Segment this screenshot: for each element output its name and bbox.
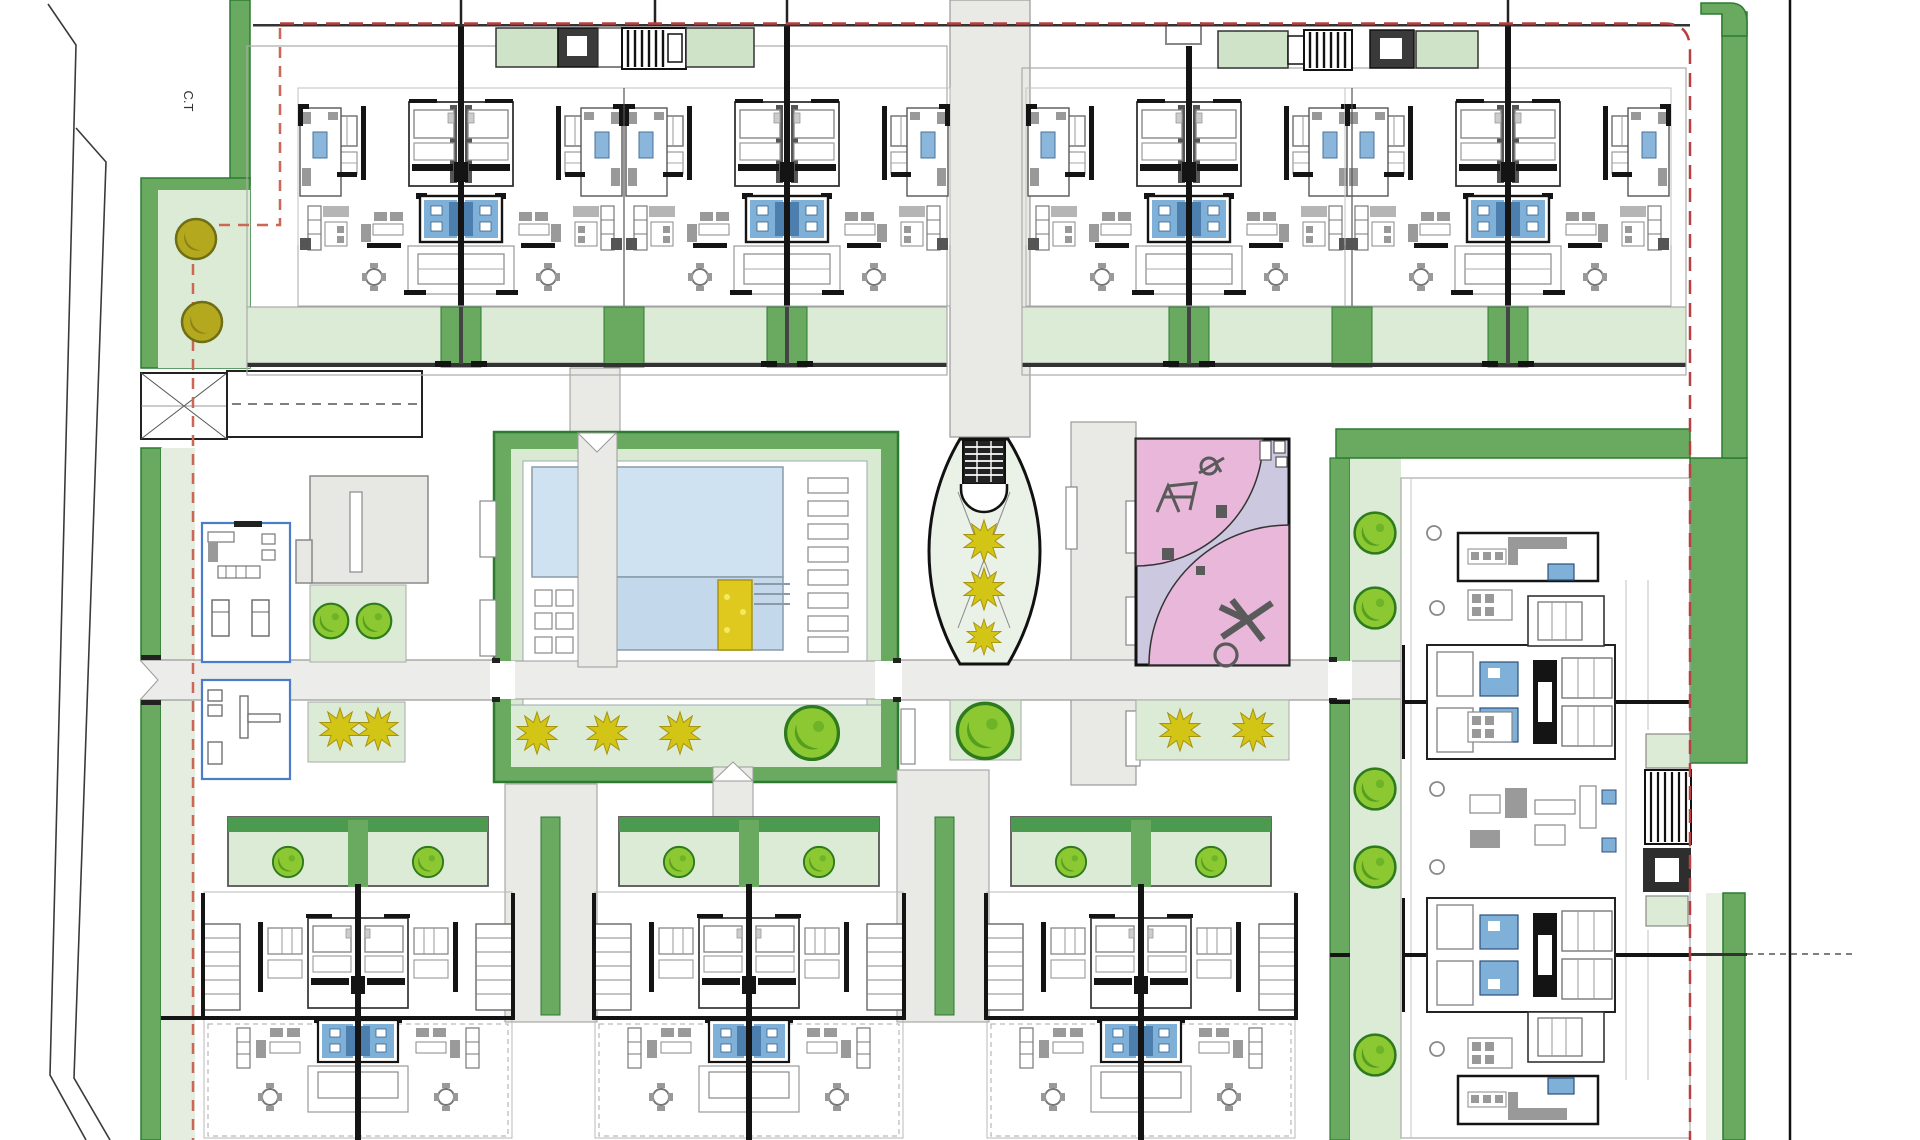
svg-text:C.T: C.T <box>181 91 196 112</box>
